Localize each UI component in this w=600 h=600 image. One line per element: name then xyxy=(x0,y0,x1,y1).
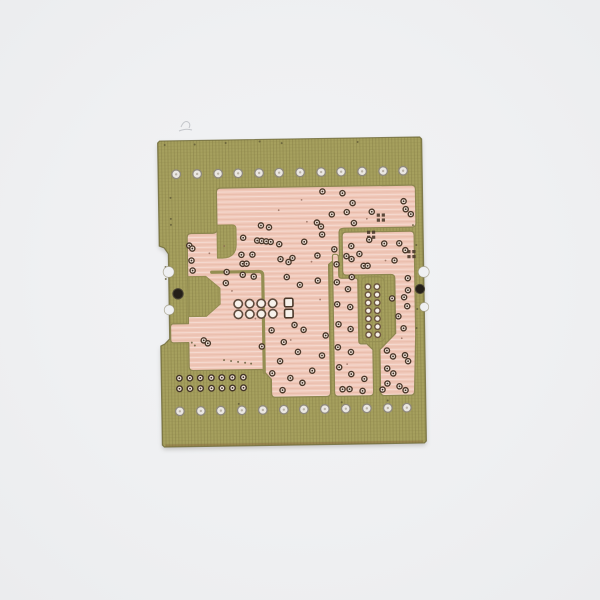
photo-background xyxy=(0,0,600,600)
micro-via xyxy=(372,236,375,239)
pour-step-notch xyxy=(217,225,237,258)
drill-hole xyxy=(173,289,184,300)
square-pad xyxy=(284,298,293,307)
square-pad xyxy=(285,309,294,318)
pcb-photo xyxy=(0,0,600,600)
edge-notch xyxy=(420,302,429,311)
micro-via xyxy=(412,250,415,253)
via-hole xyxy=(374,284,380,290)
micro-via xyxy=(412,255,415,258)
via-hole xyxy=(246,310,255,319)
via-hole xyxy=(366,324,372,330)
via-hole xyxy=(365,308,371,314)
edge-notch xyxy=(163,266,174,277)
pcb-board xyxy=(158,137,432,447)
micro-via xyxy=(367,231,370,234)
via-hole xyxy=(366,332,372,338)
micro-via xyxy=(372,231,375,234)
via-hole xyxy=(375,316,381,322)
via-hole xyxy=(257,310,266,319)
micro-via xyxy=(382,218,385,221)
micro-via xyxy=(377,219,380,222)
via-hole xyxy=(374,292,380,298)
via-hole xyxy=(268,299,277,308)
via-hole xyxy=(375,324,381,330)
via-hole xyxy=(365,300,371,306)
via-hole xyxy=(374,300,380,306)
via-hole xyxy=(365,292,371,298)
drill-hole xyxy=(415,284,424,293)
micro-via xyxy=(377,214,380,217)
via-hole xyxy=(234,310,243,319)
micro-via xyxy=(407,255,410,258)
via-hole xyxy=(269,310,278,319)
via-hole xyxy=(374,308,380,314)
via-hole xyxy=(375,332,381,338)
via-hole xyxy=(234,300,243,309)
via-hole xyxy=(365,284,371,290)
pencil-scratch xyxy=(179,122,192,131)
via-hole xyxy=(257,299,266,308)
edge-notch xyxy=(164,305,174,315)
micro-via xyxy=(382,213,385,216)
speck xyxy=(165,278,167,280)
via-hole xyxy=(366,316,372,322)
edge-notch xyxy=(418,266,429,277)
